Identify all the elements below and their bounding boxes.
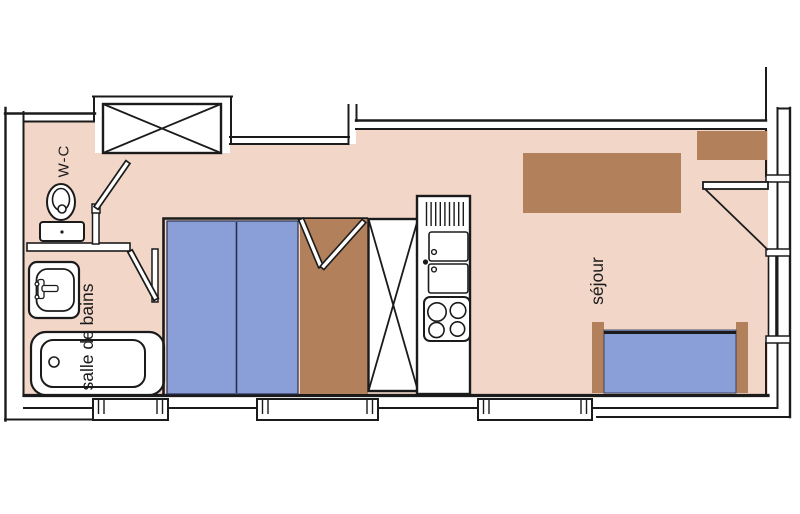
wc-label: W-C — [56, 145, 73, 178]
toilet-drain — [58, 205, 66, 213]
sofa-armrest-right — [736, 322, 748, 393]
sink-tap-cold — [35, 295, 39, 299]
sleeping-area — [164, 218, 419, 395]
sideboard — [697, 131, 767, 160]
door-jamb-top — [766, 175, 790, 182]
entry-door-leaf — [703, 182, 768, 189]
window-south-1 — [93, 399, 168, 420]
bed — [167, 221, 298, 394]
sink-faucet-spout — [42, 286, 58, 292]
kitchen-door-upper-handle — [432, 250, 437, 255]
kitchen-door-upper — [429, 232, 468, 261]
bathroom-label: salle de bains — [77, 283, 97, 390]
kitchen-cabinet — [417, 196, 470, 394]
floor-plan: W-C salle de bains séjour — [0, 0, 800, 514]
window-jamb-bottom — [766, 336, 790, 343]
sink-tap-hot — [35, 282, 39, 286]
kitchen-unit — [417, 196, 470, 394]
sofa-armrest-left — [592, 322, 604, 393]
sofa-seat — [604, 330, 736, 393]
window-south-2 — [257, 399, 378, 420]
kitchen-door-lower-handle — [432, 267, 437, 272]
living-room-label: séjour — [587, 257, 607, 305]
toilet-button — [60, 230, 63, 233]
window-south-3 — [478, 399, 592, 420]
stove — [424, 297, 470, 341]
kitchen-hinge-dot — [423, 259, 428, 264]
bathtub-drain — [49, 357, 59, 367]
entry-closet — [103, 104, 221, 153]
living-table — [523, 153, 681, 213]
windows-south — [93, 399, 592, 420]
wc-partition-wall — [27, 243, 130, 251]
wc-wall-stub — [93, 211, 100, 244]
sofa — [592, 322, 748, 393]
door-jamb-mid — [766, 249, 790, 256]
storage-closet — [369, 219, 419, 391]
floor-plan-page: W-C salle de bains séjour — [0, 0, 800, 514]
